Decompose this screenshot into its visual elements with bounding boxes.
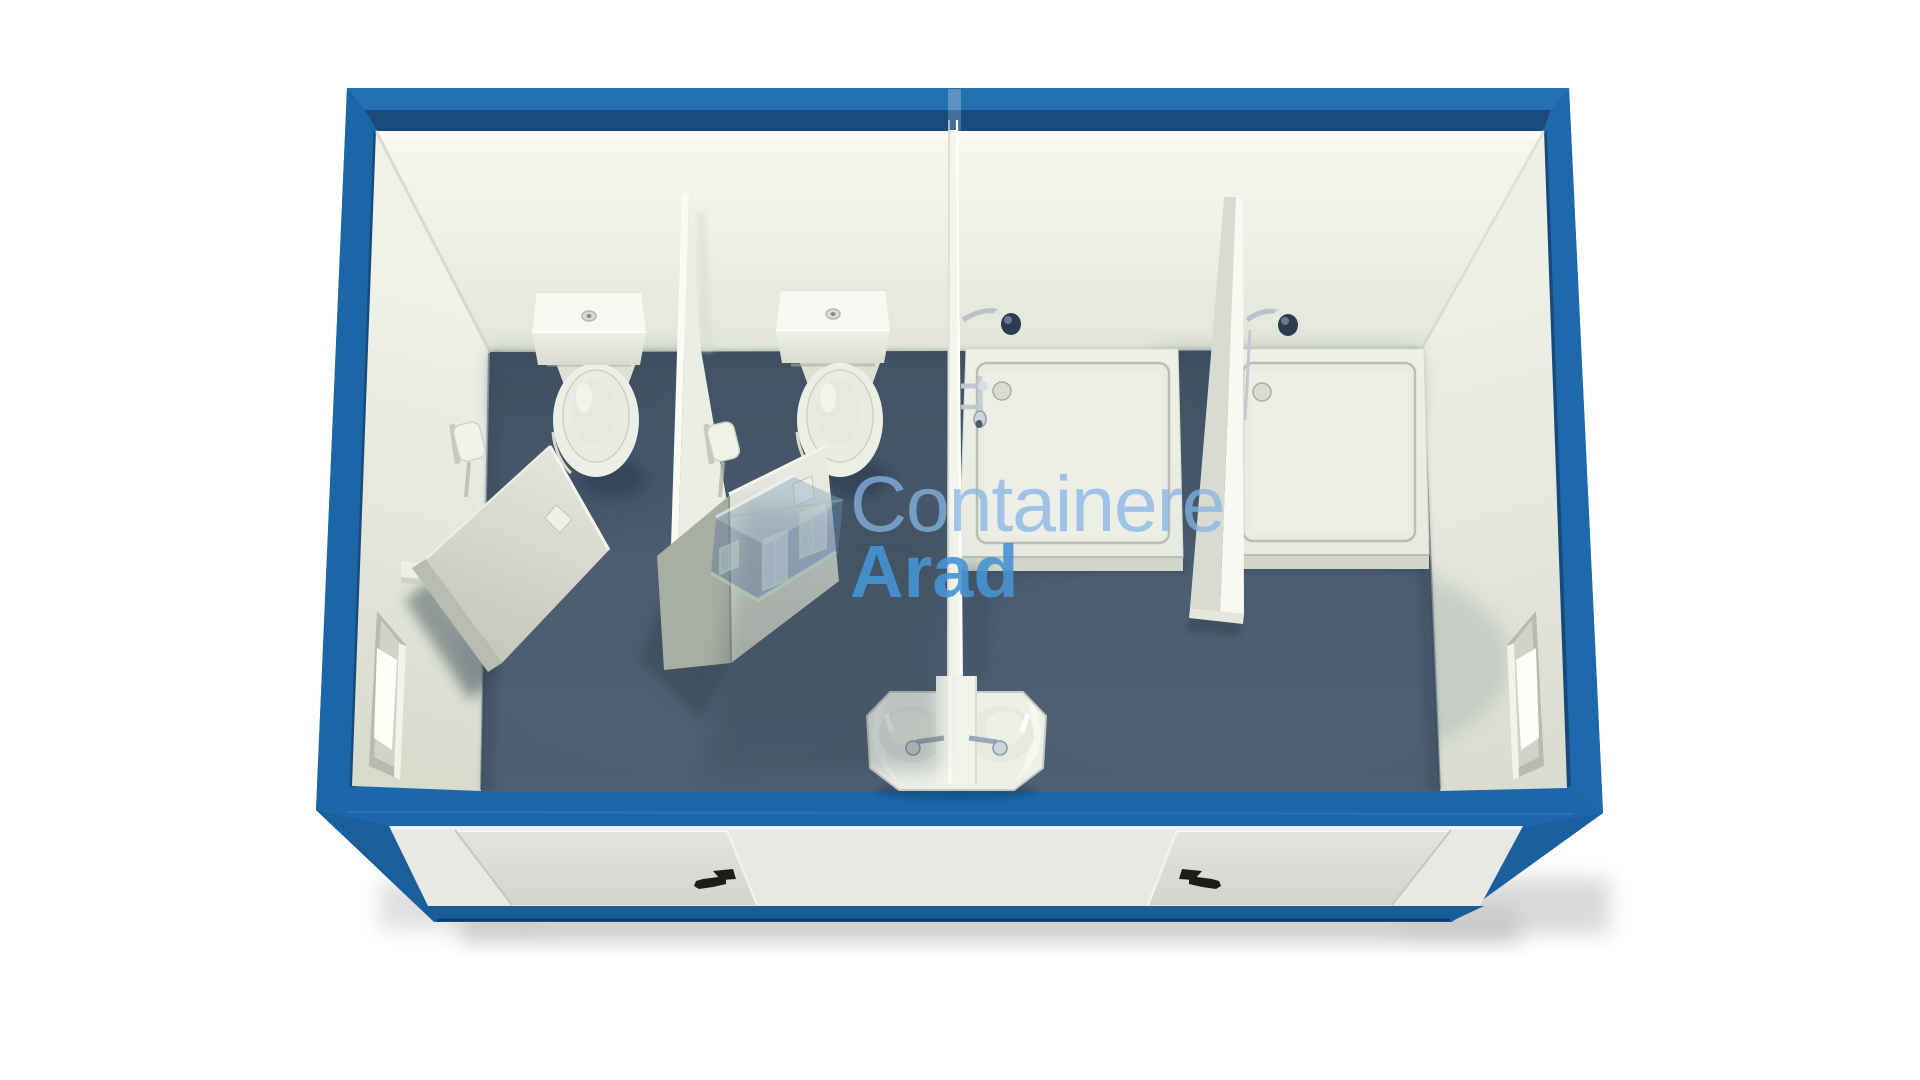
svg-text:Arad: Arad <box>850 530 1019 613</box>
